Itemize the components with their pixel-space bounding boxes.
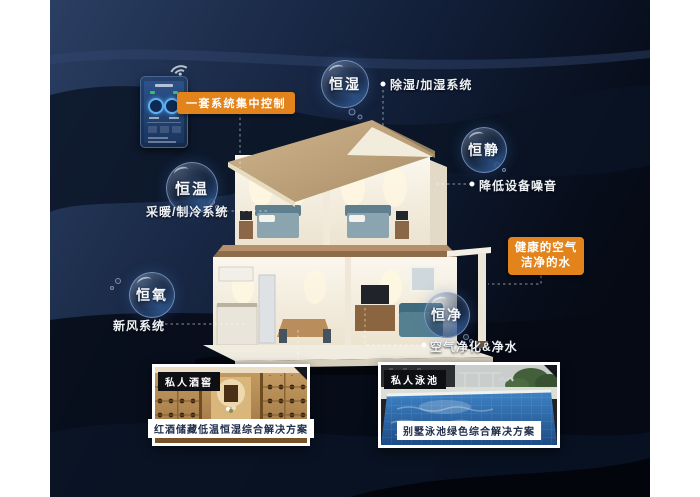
- bubble-constant-quiet: 恒静: [461, 127, 507, 173]
- folded-corner-icon: [544, 365, 557, 378]
- label-air-water-purification: 空气净化&净水: [430, 338, 518, 355]
- phone-list-row: [148, 137, 168, 139]
- bubble-constant-clean: 恒净: [424, 292, 470, 338]
- wine-cellar-caption: 红酒储藏低温恒湿综合解决方案: [148, 419, 314, 438]
- phone-status-chip: [150, 91, 155, 94]
- label-heating-cooling-system: 采暖/制冷系统: [146, 203, 228, 220]
- phone-screen-header: [155, 84, 173, 87]
- wine-cellar-tag: 私人酒窖: [158, 372, 220, 391]
- highlight-line1: 健康的空气: [510, 241, 582, 256]
- phone-list-row: [148, 141, 176, 143]
- label-fresh-air-system: 新风系统: [113, 317, 165, 334]
- label-dehumidify-system: 除湿/加湿系统: [390, 76, 472, 93]
- central-control-label: 一套系统集中控制: [177, 92, 295, 114]
- bubble-constant-humidity: 恒湿: [321, 60, 369, 108]
- folded-corner-icon: [294, 367, 307, 380]
- healthy-air-water-box: 健康的空气 洁净的水: [508, 237, 584, 275]
- phone-divider: [147, 122, 181, 123]
- pool-caption: 别墅泳池绿色综合解决方案: [397, 421, 541, 440]
- label-noise-reduction: 降低设备噪音: [479, 177, 557, 194]
- pool-tag: 私人泳池: [384, 370, 446, 389]
- bubble-label: 恒净: [431, 305, 463, 325]
- bubble-label: 恒温: [175, 178, 209, 199]
- smart-home-poster: 一套系统集中控制 恒湿 恒静 恒温 恒氧 恒净 除湿/加湿系统 降低设备噪音 采…: [0, 0, 700, 497]
- phone-tile: [172, 126, 181, 133]
- bubble-label: 恒湿: [329, 74, 361, 94]
- bubble-label: 恒静: [468, 140, 500, 160]
- phone-knob-label: [149, 117, 159, 119]
- photo-private-pool: 私人泳池 别墅泳池绿色综合解决方案: [378, 362, 560, 448]
- phone-knob-label: [169, 117, 179, 119]
- phone-tile: [160, 126, 169, 133]
- phone-tile: [148, 126, 157, 133]
- photo-wine-cellar: 私人酒窖 红酒储藏低温恒湿综合解决方案: [152, 364, 310, 446]
- highlight-line2: 洁净的水: [510, 256, 582, 271]
- bubble-constant-oxygen: 恒氧: [129, 272, 175, 318]
- bubble-label: 恒氧: [136, 285, 168, 305]
- phone-dial-knob: [148, 98, 164, 114]
